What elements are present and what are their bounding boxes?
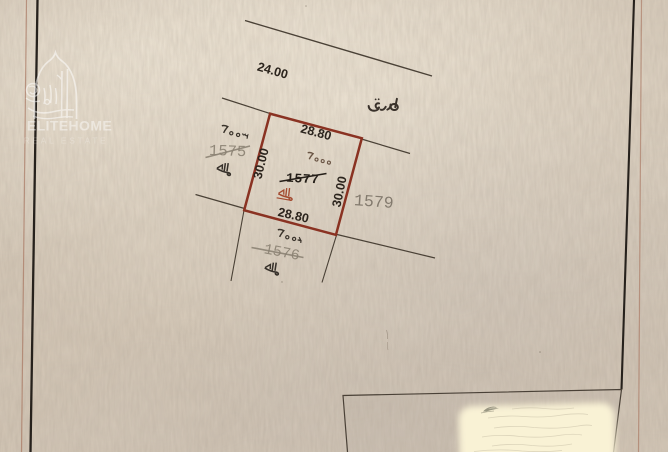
svg-text:REAL ESTATE: REAL ESTATE bbox=[24, 136, 109, 146]
svg-text:ELITEHOME: ELITEHOME bbox=[27, 118, 112, 134]
svg-text:1579: 1579 bbox=[353, 191, 394, 213]
